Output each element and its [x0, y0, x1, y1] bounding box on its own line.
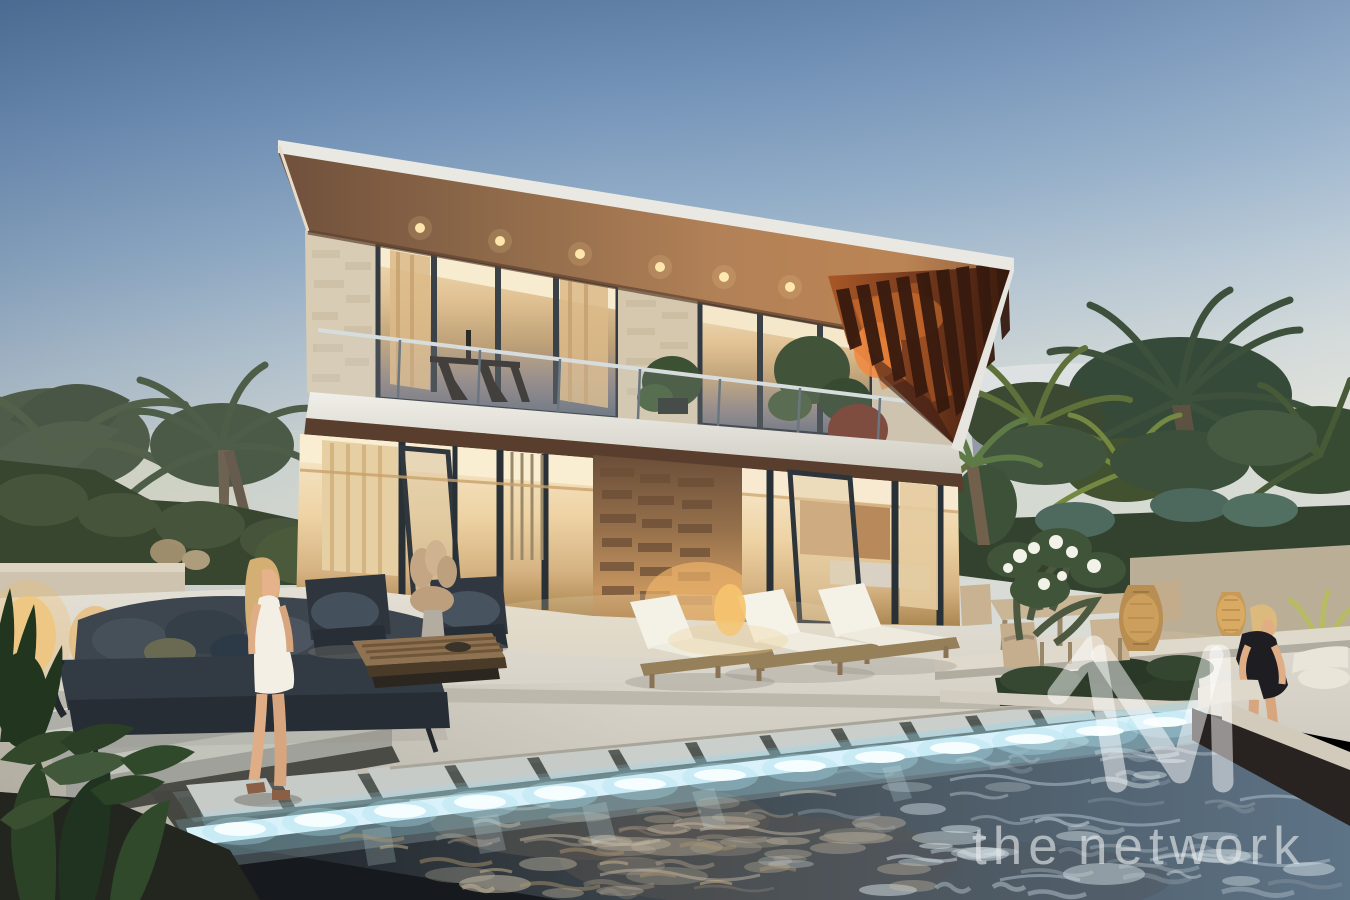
svg-text:thenetwork: thenetwork: [972, 817, 1306, 876]
